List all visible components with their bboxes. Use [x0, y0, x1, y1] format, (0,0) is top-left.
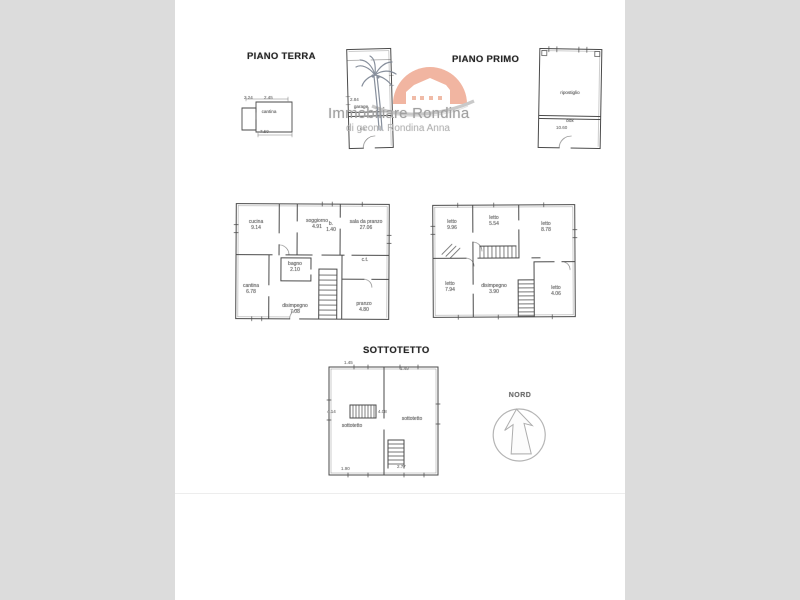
room-area: 3.90 [470, 289, 518, 295]
watermark-agency-subtitle: di geom. Rondina Anna [328, 123, 468, 134]
room-label: sottotetto [332, 423, 372, 429]
room-name: c.t. [352, 257, 378, 263]
room-area: 5.54 [476, 221, 512, 227]
room-label: bagno 2.10 [281, 261, 309, 274]
room-area: 9.14 [238, 225, 274, 231]
room-label: letto 7.94 [432, 281, 468, 294]
floorplan-page: PIANO TERRA PIANO PRIMO SOTTOTETTO 2.24 … [0, 0, 800, 600]
dim-label: 1.45 [344, 360, 353, 365]
watermark-agency-name: Immobiliare Rondina [328, 105, 468, 122]
stairs-hatch [353, 405, 374, 418]
dim-label: 1.90 [341, 466, 350, 471]
stairs-hatch [518, 284, 534, 316]
room-area: 4.80 [346, 307, 382, 313]
north-arrow-icon [488, 402, 550, 464]
north-label: NORD [500, 392, 540, 399]
dim-label: 2.24 [244, 95, 253, 100]
dim-label: 1.49 [400, 366, 409, 371]
storage-annex-plan-drawing [535, 43, 605, 152]
room-label: cantina [256, 109, 282, 115]
stairs-hatch [388, 444, 404, 464]
room-label: box [560, 118, 580, 124]
room-name: box [560, 118, 580, 124]
room-area: 7.94 [432, 287, 468, 293]
room-label: letto 8.78 [528, 221, 564, 234]
stairs-hatch [480, 246, 516, 258]
room-area: 27.06 [344, 225, 388, 231]
room-area: 1.40 [324, 227, 338, 233]
room-area: 9.96 [434, 225, 470, 231]
room-name: sottotetto [332, 423, 372, 429]
dim-label: 2.45 [264, 95, 273, 100]
room-label: cucina 9.14 [238, 219, 274, 232]
room-label: disimpegno 3.90 [470, 283, 518, 296]
room-label: disimpegno 7.08 [272, 303, 318, 316]
room-label: letto 9.96 [434, 219, 470, 232]
room-label: cantina 6.78 [235, 283, 267, 296]
dim-label: 10.60 [556, 125, 582, 130]
room-area: 6.78 [235, 289, 267, 295]
title-sottotetto: SOTTOTETTO [363, 345, 430, 356]
room-area: 2.10 [281, 267, 309, 273]
room-name: sottotetto [392, 416, 432, 422]
photo-bottom-edge [175, 493, 625, 494]
dim-label: 4.14 [327, 409, 336, 414]
room-area: 7.08 [272, 309, 318, 315]
room-label: b. 1.40 [324, 221, 338, 234]
title-piano-terra: PIANO TERRA [247, 51, 316, 62]
dim-label: 4.08 [378, 409, 387, 414]
room-label: ripostiglio [548, 90, 592, 96]
room-label: sottotetto [392, 416, 432, 422]
room-area: 4.06 [538, 291, 574, 297]
dim-label: 2.77 [397, 464, 406, 469]
room-label: c.t. [352, 257, 378, 263]
room-label: pranzo 4.80 [346, 301, 382, 314]
room-label: letto 4.06 [538, 285, 574, 298]
room-name: ripostiglio [548, 90, 592, 96]
room-area: 8.78 [528, 227, 564, 233]
room-label: sala da pranzo 27.06 [344, 219, 388, 232]
dim-label: 7.50 [260, 129, 269, 134]
stairs-hatch [319, 275, 337, 315]
room-name: cantina [256, 109, 282, 115]
room-label: letto 5.54 [476, 215, 512, 228]
